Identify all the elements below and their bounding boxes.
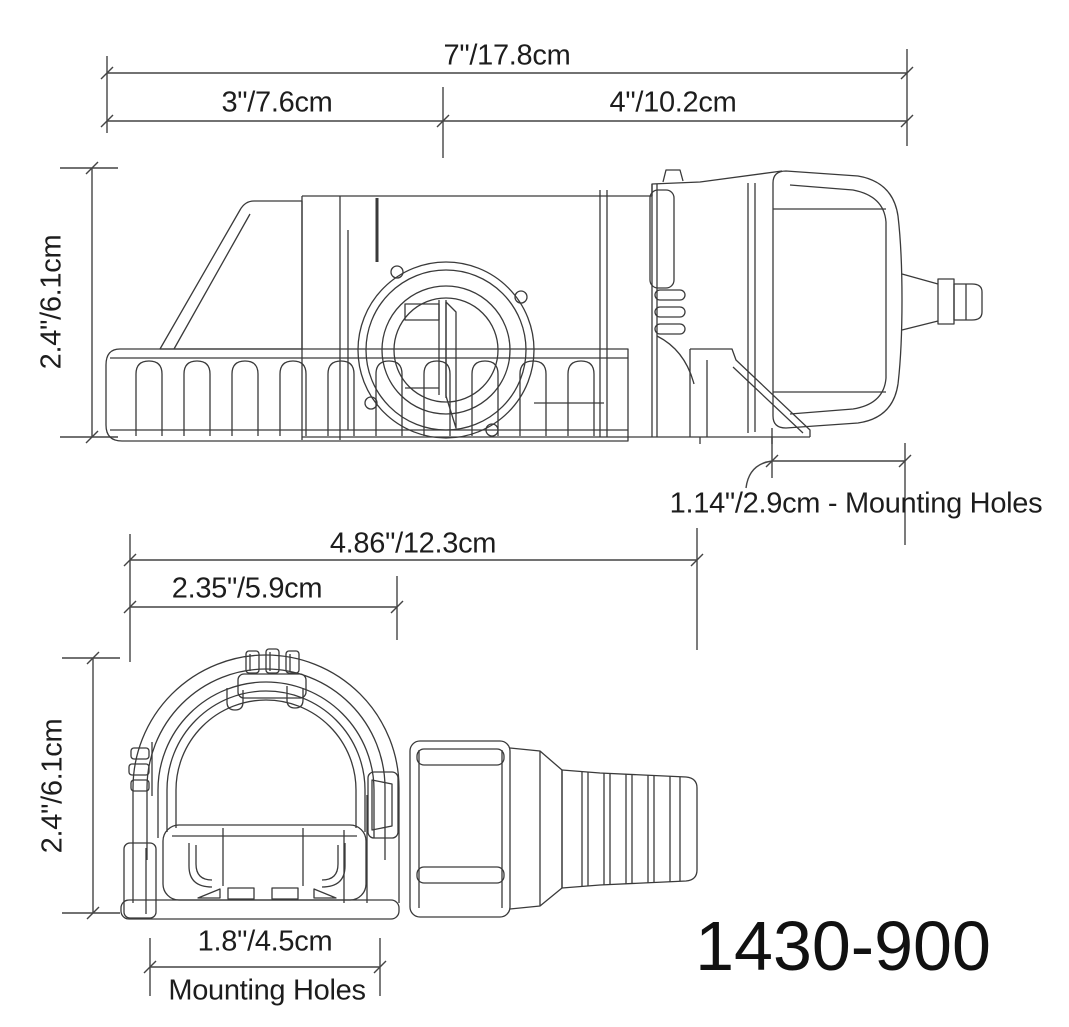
dim-label-mounting-holes-front: Mounting Holes [168,975,365,1008]
dimension-lines-mounting-side [746,428,911,545]
dimension-lines-front-height [62,652,120,919]
dim-label-side-height: 2.4"/6.1cm [36,235,69,370]
model-number: 1430-900 [695,906,991,986]
strainer-slots [136,361,594,436]
dim-label-overall-length: 7"/17.8cm [444,40,571,73]
dim-label-front-body-width: 2.35"/5.9cm [172,573,322,606]
dim-label-front-mounting-width: 1.8"/4.5cm [198,926,333,959]
technical-drawing-page: 7"/17.8cm 3"/7.6cm 4"/10.2cm 2.4"/6.1cm … [0,0,1069,1027]
dim-label-mounting-holes-side: 1.14"/2.9cm - Mounting Holes [670,488,1043,521]
front-view-drawing [121,649,697,919]
side-view-drawing [106,170,982,444]
dim-label-front-section: 3"/7.6cm [221,87,332,120]
dim-label-rear-section: 4"/10.2cm [610,87,737,120]
dim-label-front-overall-width: 4.86"/12.3cm [330,528,496,561]
dim-label-front-height: 2.4"/6.1cm [37,719,70,854]
dimension-lines-side-height [60,162,118,443]
